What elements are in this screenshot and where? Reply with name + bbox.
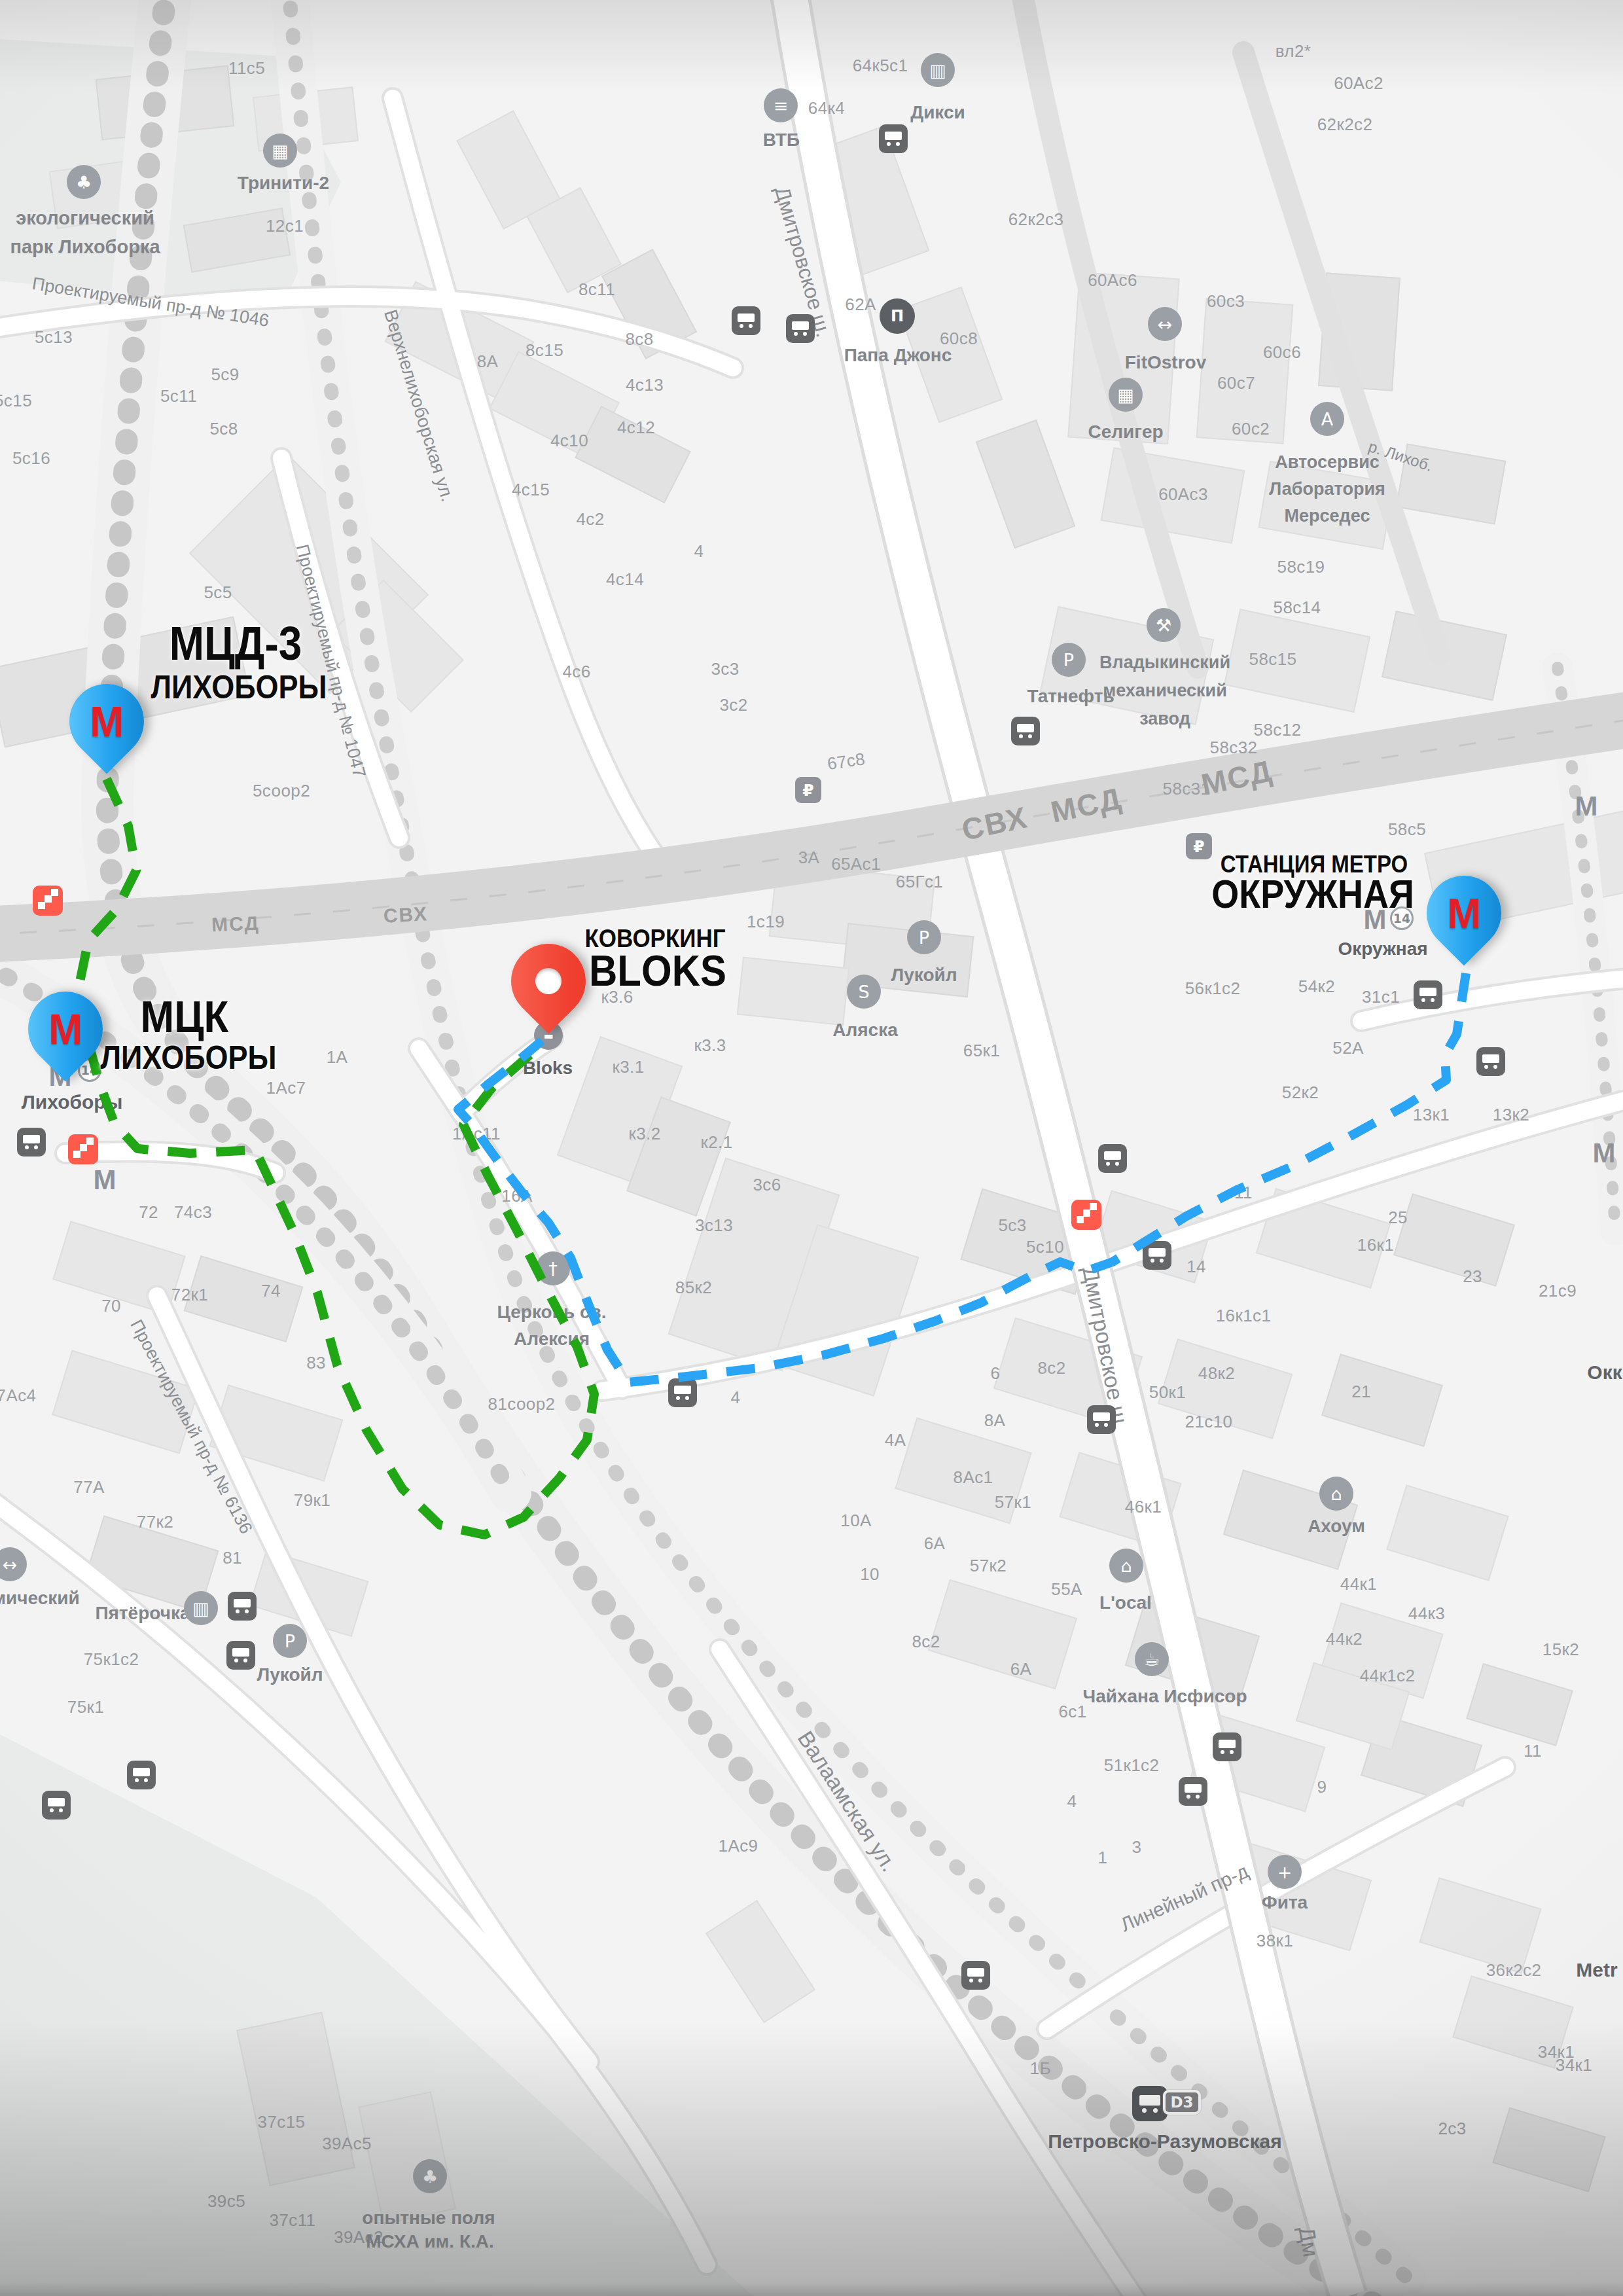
map-title: ЛИХОБОРЫ bbox=[151, 671, 327, 704]
map-title: ЛИХОБОРЫ bbox=[100, 1041, 276, 1074]
map-title: МЦК bbox=[141, 994, 229, 1039]
map-title: BLOKS bbox=[589, 949, 726, 993]
map-title: МЦД-3 bbox=[169, 620, 302, 667]
map-canvas[interactable]: 11с5вл2*60Ас262к2с264к5с164к4ДиксиВТБ62А… bbox=[0, 0, 1623, 2296]
map-title: ОКРУЖНАЯ bbox=[1211, 874, 1414, 914]
map-titles: МЦД-3ЛИХОБОРЫМЦКЛИХОБОРЫКОВОРКИНГBLOKSСТ… bbox=[0, 0, 1623, 2296]
